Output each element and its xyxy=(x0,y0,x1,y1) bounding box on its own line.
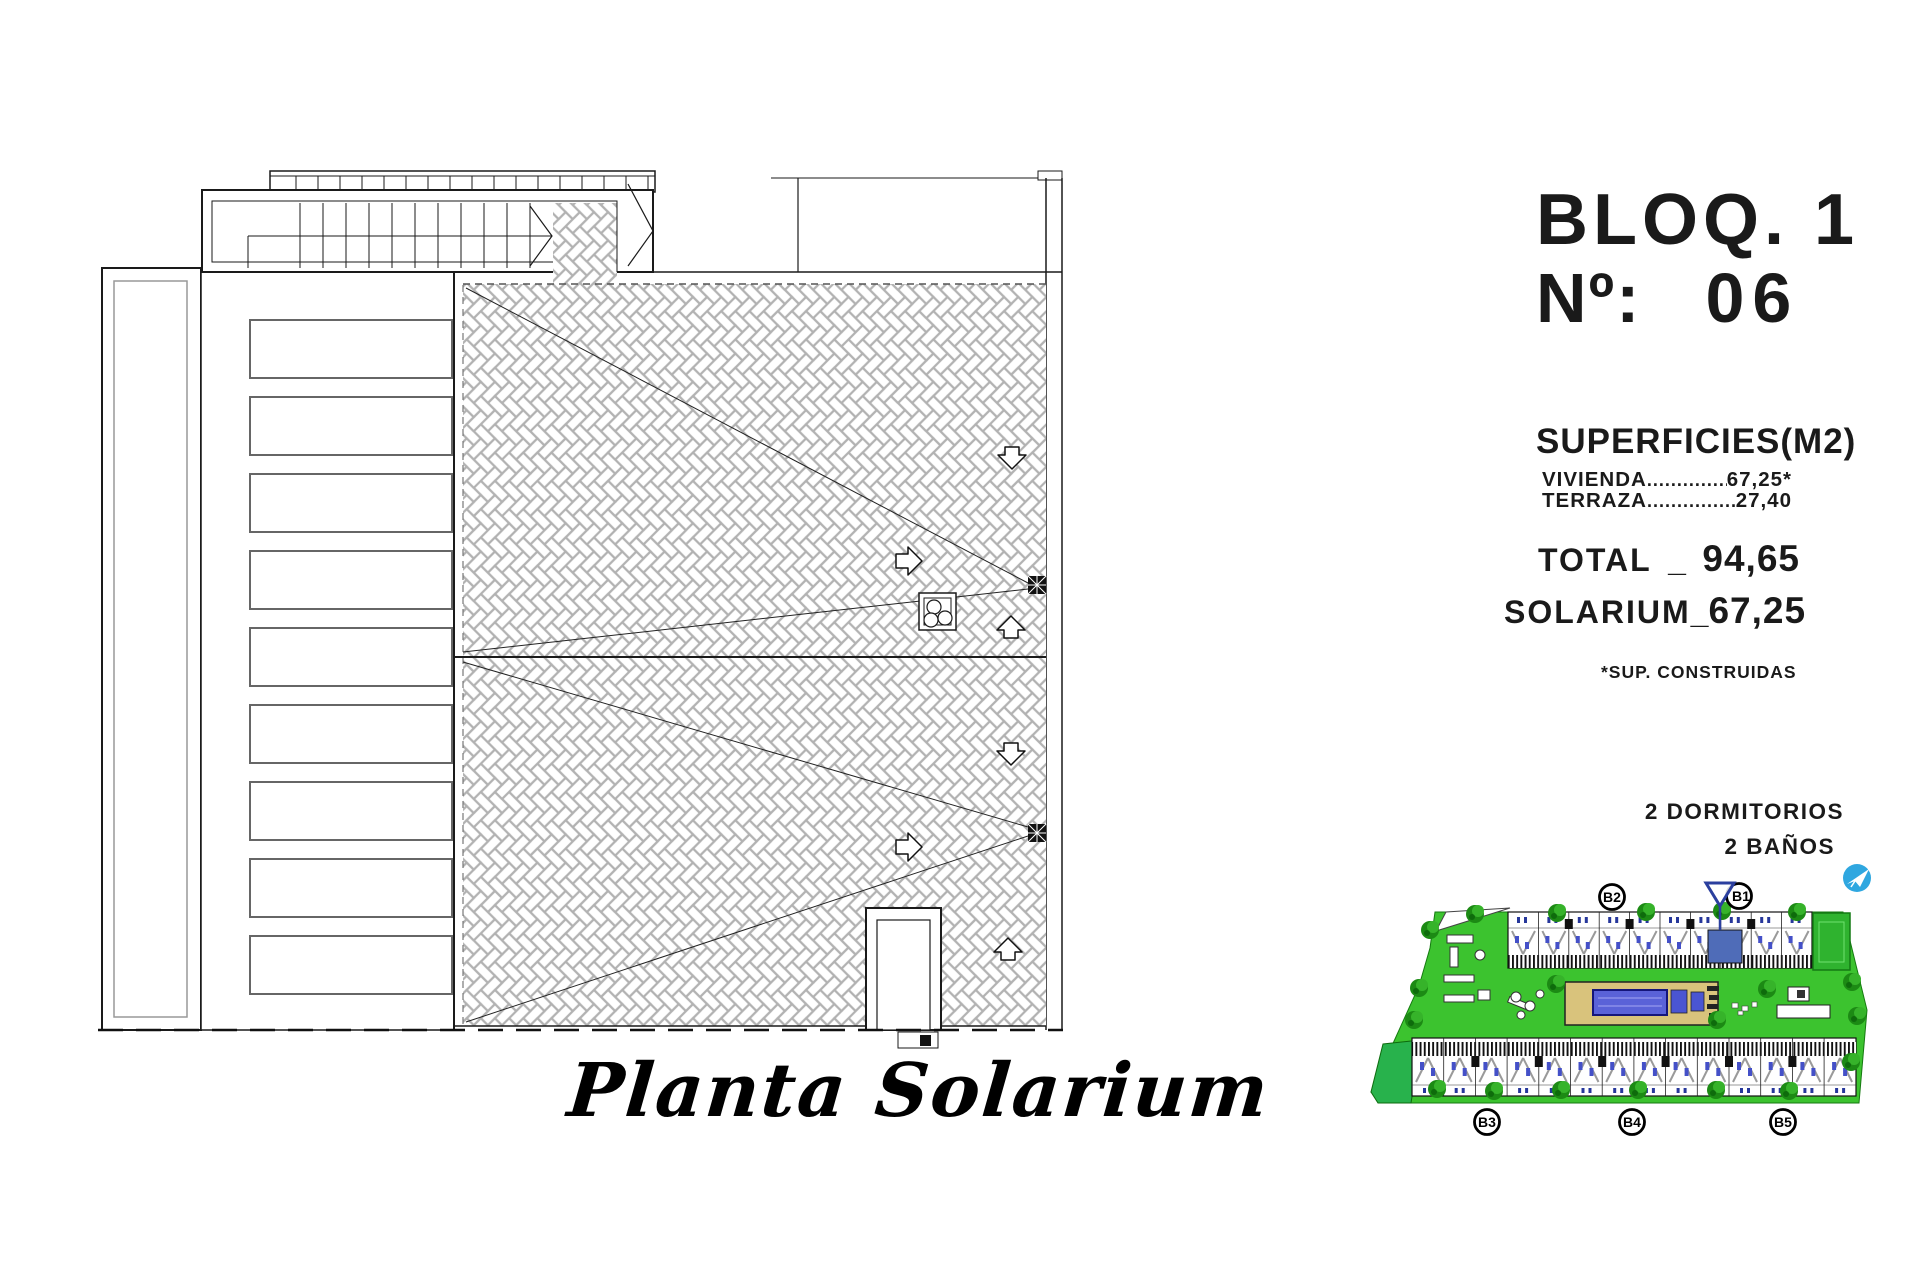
tree-icon xyxy=(1637,903,1655,921)
tree-icon xyxy=(1629,1081,1647,1099)
tree-icon xyxy=(1410,979,1428,997)
tree-icon xyxy=(1405,1011,1423,1029)
gym-mat xyxy=(1671,990,1687,1013)
gym-mat xyxy=(1691,992,1704,1011)
drawing-caption: Planta Solarium xyxy=(564,1048,1273,1134)
kiosk xyxy=(1788,987,1809,1001)
logo-icon xyxy=(1843,864,1871,892)
total-value: 94,65 xyxy=(1702,538,1800,580)
svg-text:B2: B2 xyxy=(1603,889,1621,905)
svg-text:B3: B3 xyxy=(1478,1114,1496,1130)
footnote: *SUP. CONSTRUIDAS xyxy=(1601,662,1797,683)
tree-icon xyxy=(1848,1007,1866,1025)
superficies-rows: VIVIENDA .................... 67,25* TER… xyxy=(1542,468,1792,510)
superficies-row-terraza: TERRAZA ................... 27,40 xyxy=(1542,489,1792,510)
solarium-separator: _ xyxy=(1691,594,1709,631)
pool xyxy=(1593,990,1667,1015)
tree-icon xyxy=(1421,921,1439,939)
svg-text:B5: B5 xyxy=(1774,1114,1792,1130)
door xyxy=(866,908,941,1048)
fixture-icon xyxy=(919,593,956,630)
tree-icon xyxy=(1466,905,1484,923)
tree-icon xyxy=(1485,1082,1503,1100)
total-row: TOTAL _ 94,65 xyxy=(1538,538,1800,580)
unit-number-label: Nº: xyxy=(1536,258,1641,338)
total-label: TOTAL xyxy=(1538,542,1652,579)
tree-icon xyxy=(1843,973,1861,991)
svg-text:B4: B4 xyxy=(1623,1114,1641,1130)
svg-text:B1: B1 xyxy=(1732,888,1750,904)
marker-b4: B4 xyxy=(1620,1110,1645,1135)
solarium-row: SOLARIUM _ 67,25 xyxy=(1504,590,1800,632)
staircase xyxy=(202,184,653,285)
total-separator: _ xyxy=(1668,542,1686,579)
tree-icon xyxy=(1708,1011,1726,1029)
superficies-row-vivienda: VIVIENDA .................... 67,25* xyxy=(1542,468,1792,489)
unit-number-value: 06 xyxy=(1705,258,1799,338)
tree-icon xyxy=(1758,980,1776,998)
tree-icon xyxy=(1552,1081,1570,1099)
drain-icon xyxy=(1028,824,1046,842)
dot-leader: ................... xyxy=(1647,491,1736,512)
marker-b5: B5 xyxy=(1771,1110,1796,1135)
solarium-terrace xyxy=(454,272,1046,1030)
marker-b3: B3 xyxy=(1475,1110,1500,1135)
tree-icon xyxy=(1707,1081,1725,1099)
dot-leader: .................... xyxy=(1647,470,1727,491)
tree-icon xyxy=(1788,903,1806,921)
solarium-value: 67,25 xyxy=(1708,590,1806,632)
site-plan-map: B2 B1 B3 B4 B5 xyxy=(1360,850,1920,1165)
bedrooms-label: 2 DORMITORIOS xyxy=(1645,794,1844,829)
row-value: 27,40 xyxy=(1736,489,1792,513)
left-elevation xyxy=(102,268,454,1030)
plan-sheet: BLOQ. 1 Nº: 06 SUPERFICIES(M2) VIVIENDA … xyxy=(0,0,1920,1280)
pergola xyxy=(1777,1005,1830,1018)
block-title: BLOQ. 1 xyxy=(1536,182,1859,258)
unit-number-line: Nº: 06 xyxy=(1536,258,1799,338)
tree-icon xyxy=(1780,1082,1798,1100)
row-label: TERRAZA xyxy=(1542,489,1647,513)
marker-b2: B2 xyxy=(1600,885,1625,910)
superficies-title: SUPERFICIES(M2) xyxy=(1536,422,1856,462)
solarium-label: SOLARIUM xyxy=(1504,594,1691,631)
tree-icon xyxy=(1842,1053,1860,1071)
tree-icon xyxy=(1428,1080,1446,1098)
tree-icon xyxy=(1547,975,1565,993)
highlighted-unit xyxy=(1708,930,1742,963)
tree-icon xyxy=(1548,904,1566,922)
pergola-band xyxy=(270,171,655,192)
drain-icon xyxy=(1028,576,1046,594)
